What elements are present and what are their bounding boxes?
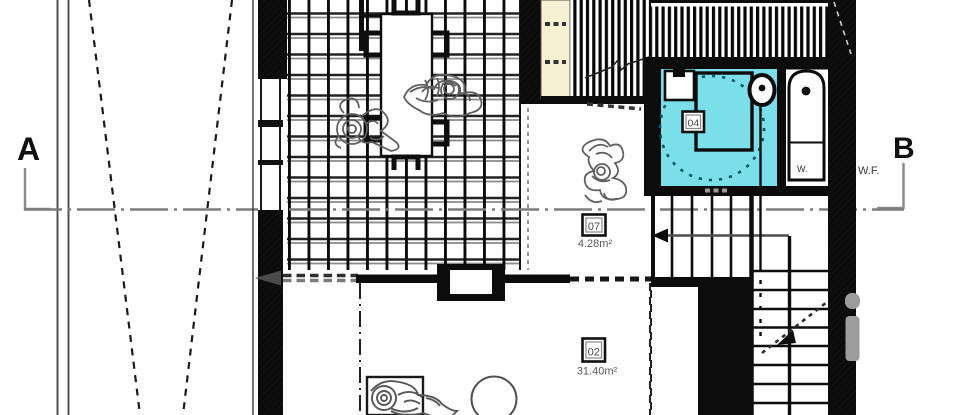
svg-text:W.: W. <box>797 164 808 174</box>
svg-text:07: 07 <box>588 221 600 233</box>
svg-text:31.40m²: 31.40m² <box>577 366 618 378</box>
svg-text:B: B <box>893 132 915 165</box>
svg-text:4.28m²: 4.28m² <box>578 238 613 250</box>
svg-text:A: A <box>17 131 40 167</box>
svg-text:W.F.: W.F. <box>858 165 879 177</box>
svg-text:04: 04 <box>688 118 700 130</box>
svg-text:02: 02 <box>588 347 600 359</box>
